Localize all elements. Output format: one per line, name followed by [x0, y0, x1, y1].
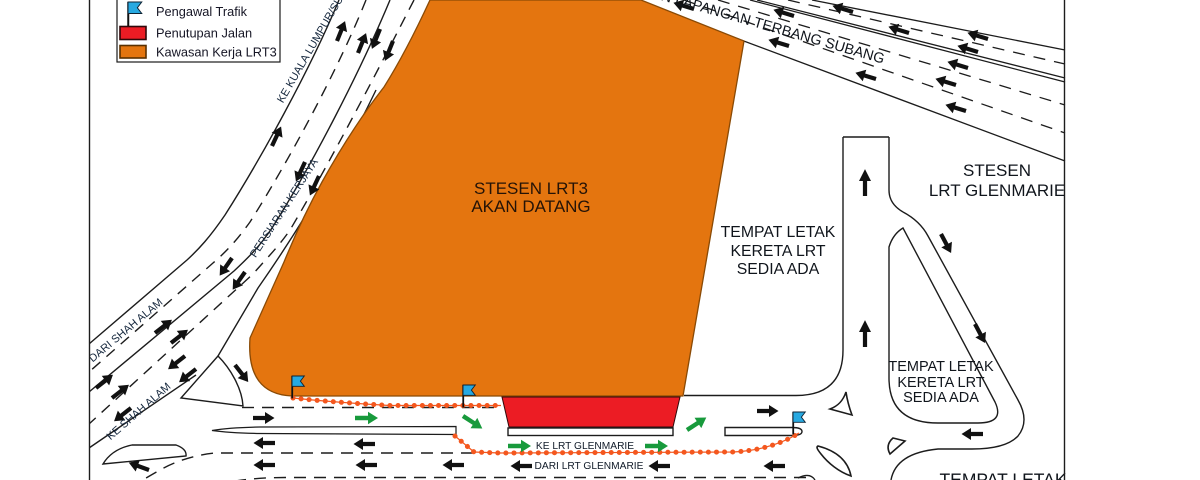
- svg-text:TEMPAT LETAK: TEMPAT LETAK: [939, 470, 1066, 480]
- svg-text:KERETA LRT: KERETA LRT: [730, 243, 825, 260]
- svg-text:KERETA LRT: KERETA LRT: [897, 375, 984, 391]
- svg-text:AKAN DATANG: AKAN DATANG: [471, 197, 590, 216]
- svg-text:SEDIA ADA: SEDIA ADA: [737, 261, 820, 278]
- svg-text:SEDIA ADA: SEDIA ADA: [903, 390, 979, 406]
- svg-text:TEMPAT LETAK: TEMPAT LETAK: [721, 224, 836, 241]
- svg-text:Penutupan Jalan: Penutupan Jalan: [156, 26, 252, 41]
- svg-text:Pengawal Trafik: Pengawal Trafik: [156, 4, 248, 19]
- svg-text:KE LRT GLENMARIE: KE LRT GLENMARIE: [536, 441, 634, 452]
- svg-text:LRT GLENMARIE: LRT GLENMARIE: [929, 181, 1065, 200]
- svg-text:TEMPAT LETAK: TEMPAT LETAK: [888, 359, 994, 375]
- svg-text:Kawasan Kerja LRT3: Kawasan Kerja LRT3: [156, 45, 277, 60]
- svg-text:DARI LRT GLENMARIE: DARI LRT GLENMARIE: [535, 461, 644, 472]
- svg-text:STESEN LRT3: STESEN LRT3: [474, 179, 588, 198]
- svg-text:STESEN: STESEN: [963, 161, 1031, 180]
